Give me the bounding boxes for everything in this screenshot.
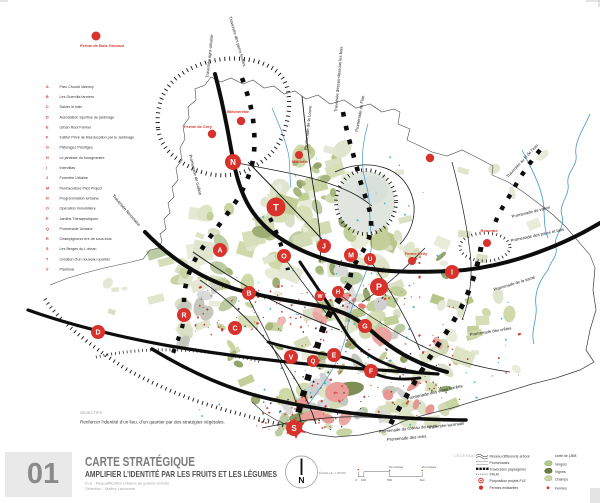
svg-text:Blécherette: Blécherette (227, 109, 250, 114)
svg-text:FLE - Requalification urbaine: FLE - Requalification urbaine de grande … (85, 481, 170, 486)
svg-text:Traversées paysagères: Traversées paysagères (490, 468, 527, 472)
svg-text:Proposition projets FLE: Proposition projets FLE (490, 479, 527, 483)
svg-text:M: M (348, 253, 354, 260)
svg-text:Champs: Champs (555, 478, 568, 482)
svg-text:D: D (46, 115, 49, 119)
svg-text:Fermes: Fermes (555, 487, 567, 491)
svg-text:500: 500 (387, 478, 392, 482)
svg-text:Pâturages Prestiges: Pâturages Prestiges (60, 146, 93, 150)
svg-text:Q: Q (46, 227, 49, 231)
svg-text:LÉGENDE:: LÉGENDE: (454, 453, 477, 458)
svg-text:Promenades: Promenades (490, 461, 510, 465)
svg-text:U: U (368, 257, 372, 263)
svg-text:V: V (289, 355, 294, 362)
svg-text:Sélection - Malley Lausanne: Sélection - Malley Lausanne (85, 486, 136, 491)
svg-text:Ferme Kelly: Ferme Kelly (405, 251, 428, 256)
svg-text:Vignes: Vignes (555, 470, 566, 474)
svg-text:T: T (273, 202, 279, 213)
svg-text:Promenade Urbaine: Promenade Urbaine (60, 227, 93, 231)
svg-text:H: H (46, 156, 49, 160)
svg-text:O: O (281, 254, 287, 261)
svg-text:I: I (451, 270, 453, 277)
svg-text:N: N (46, 197, 49, 201)
svg-text:Saluer le train: Saluer le train (60, 105, 83, 109)
svg-text:A: A (217, 248, 222, 255)
svg-text:10 minutes: 10 minutes (389, 465, 404, 469)
svg-text:01: 01 (27, 458, 59, 490)
svg-text:J: J (322, 244, 326, 251)
svg-text:Opération Immobilière: Opération Immobilière (60, 207, 96, 211)
svg-text:Ferme de Bois Genoud: Ferme de Bois Genoud (80, 43, 124, 48)
svg-text:Ferme de Cery: Ferme de Cery (184, 124, 213, 129)
svg-text:N: N (298, 475, 304, 485)
svg-text:D: D (95, 330, 100, 337)
svg-text:Maillefer: Maillefer (292, 159, 309, 164)
svg-text:H: H (336, 290, 340, 296)
svg-text:AMPLIFIER L’IDENTITÉ PAR LES F: AMPLIFIER L’IDENTITÉ PAR LES FRUITS ET L… (85, 468, 277, 479)
svg-text:ÉCHELLE: 1:25/300: ÉCHELLE: 1:25/300 (319, 470, 346, 475)
svg-text:Réseau différencié arboré: Réseau différencié arboré (490, 455, 530, 459)
svg-text:Jardins Thérapeutiques: Jardins Thérapeutiques (60, 217, 99, 221)
svg-text:Le jardinier du bourgmestre: Le jardinier du bourgmestre (60, 156, 105, 160)
svg-text:1km: 1km (420, 478, 426, 482)
svg-text:Association Sportive de jardin: Association Sportive de jardinage (60, 115, 115, 119)
svg-text:R: R (181, 313, 186, 320)
svg-text:N: N (230, 158, 236, 167)
svg-text:Plantoral: Plantoral (60, 268, 75, 272)
svg-text:C: C (46, 105, 49, 109)
svg-text:CARTE STRATÉGIQUE: CARTE STRATÉGIQUE (85, 454, 195, 469)
svg-text:Rouvraie: Rouvraie (480, 228, 498, 233)
svg-text:Champignonni ère de sous-bo: Champignonni ère de sous-bois (60, 237, 112, 241)
svg-text:Programmation Urbaine: Programmation Urbaine (60, 197, 99, 201)
svg-text:Fermes existantes: Fermes existantes (490, 486, 519, 490)
svg-text:Institut Privé de Rééducation: Institut Privé de Rééducation par le Jar… (60, 136, 135, 140)
svg-text:Renforcer l’identité d’un lieu: Renforcer l’identité d’un lieu, d’un qua… (80, 420, 225, 425)
svg-text:OBJECTIFS:: OBJECTIFS: (80, 410, 103, 415)
svg-text:R: R (46, 237, 49, 241)
svg-text:Vergers: Vergers (555, 463, 567, 467)
svg-text:Permaculture Pilot Project: Permaculture Pilot Project (60, 186, 103, 190)
svg-text:S: S (291, 424, 297, 433)
svg-text:F: F (369, 369, 374, 376)
svg-text:B: B (46, 95, 49, 99)
svg-text:Création d’un nouveau quartier: Création d’un nouveau quartier (60, 257, 111, 261)
svg-text:E: E (332, 353, 337, 360)
svg-text:J: J (46, 176, 48, 180)
svg-text:C: C (232, 326, 237, 333)
svg-text:W: W (318, 294, 323, 300)
svg-text:Parc Chould Valency: Parc Chould Valency (60, 85, 94, 89)
svg-text:Urban Roof Farmer: Urban Roof Farmer (60, 125, 93, 129)
svg-text:M: M (46, 186, 49, 190)
svg-text:Les Berges du L éman: Les Berges du L éman (60, 247, 97, 251)
svg-text:PALM: PALM (490, 473, 499, 477)
svg-text:Les Guerrilla farmers: Les Guerrilla farmers (60, 95, 95, 99)
svg-text:O: O (46, 207, 49, 211)
svg-text:P: P (376, 282, 382, 292)
svg-text:A: A (46, 85, 49, 89)
svg-text:Forestrie Urbaine: Forestrie Urbaine (60, 176, 89, 180)
svg-text:G: G (46, 146, 49, 150)
svg-text:Q: Q (311, 359, 316, 365)
svg-text:20 minutes: 20 minutes (422, 465, 437, 469)
svg-text:B: B (246, 291, 251, 298)
svg-text:carte de 1898: carte de 1898 (555, 454, 576, 458)
svg-text:Intervillas: Intervillas (60, 166, 76, 170)
svg-text:I: I (46, 166, 47, 170)
svg-text:100: 100 (361, 478, 366, 482)
svg-text:G: G (362, 324, 368, 331)
